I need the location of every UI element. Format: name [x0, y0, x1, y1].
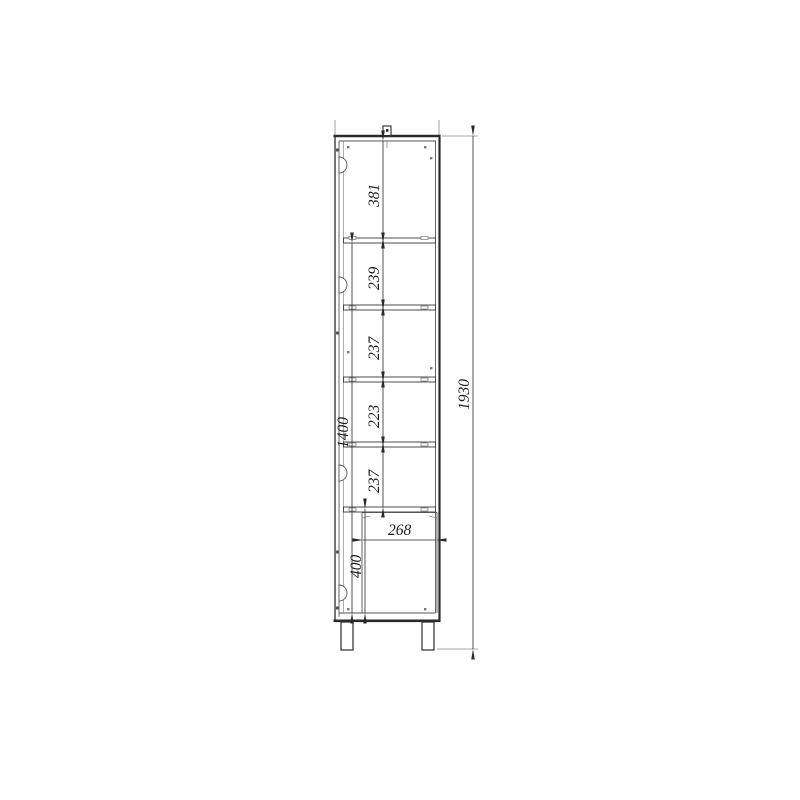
shelf-5-end-connector-left: [349, 508, 356, 511]
hinge-screw-mark-1: [336, 149, 339, 152]
dim-400-label: 400: [348, 555, 365, 579]
dim-239-label: 239: [366, 267, 383, 291]
shelf-4-end-connector-right: [421, 443, 428, 446]
shelf-2: [344, 305, 436, 310]
dim-223-label: 223: [366, 405, 383, 429]
cabinet-technical-drawing: 381 239 237 223 237 400 1400 1930 268: [0, 0, 800, 800]
hinge-screw-mark-3: [336, 551, 339, 554]
shelf-2-end-connector-right: [421, 306, 428, 309]
left-leg: [341, 622, 353, 650]
hinge-cup-3: [339, 465, 347, 481]
hinge-cup-1: [339, 157, 347, 173]
hinge-screw-mark-2: [336, 332, 339, 335]
shelf-3: [344, 377, 436, 382]
shelf-3-end-connector-right: [421, 378, 428, 381]
dim-237a-label: 237: [366, 336, 383, 361]
dim-381-label: 381: [366, 184, 383, 208]
drawer-corner-mark-left: [362, 516, 370, 518]
hinge-cup-2: [339, 277, 347, 293]
shelves: [344, 237, 436, 513]
dim-237b-label: 237: [366, 469, 383, 494]
shelf-1-end-connector-right: [421, 237, 428, 240]
hinge-screw-mark-4: [336, 607, 339, 610]
drawing-canvas: 381 239 237 223 237 400 1400 1930 268: [0, 0, 800, 800]
shelf-4: [344, 442, 436, 447]
shelf-5: [344, 507, 436, 512]
right-leg: [422, 622, 434, 650]
shelf-1: [344, 237, 436, 244]
dim-1930-label: 1930: [456, 379, 473, 410]
shelf-1-end-connector-left: [349, 237, 356, 240]
hanging-bracket-hole: [386, 129, 388, 132]
hinge-cup-4: [339, 585, 347, 601]
shelf-3-end-connector-left: [349, 378, 356, 381]
dim-268-label: 268: [388, 522, 412, 539]
shelf-2-end-connector-left: [349, 306, 356, 309]
shelf-5-end-connector-right: [421, 508, 428, 511]
dim-1400-label: 1400: [335, 417, 352, 448]
